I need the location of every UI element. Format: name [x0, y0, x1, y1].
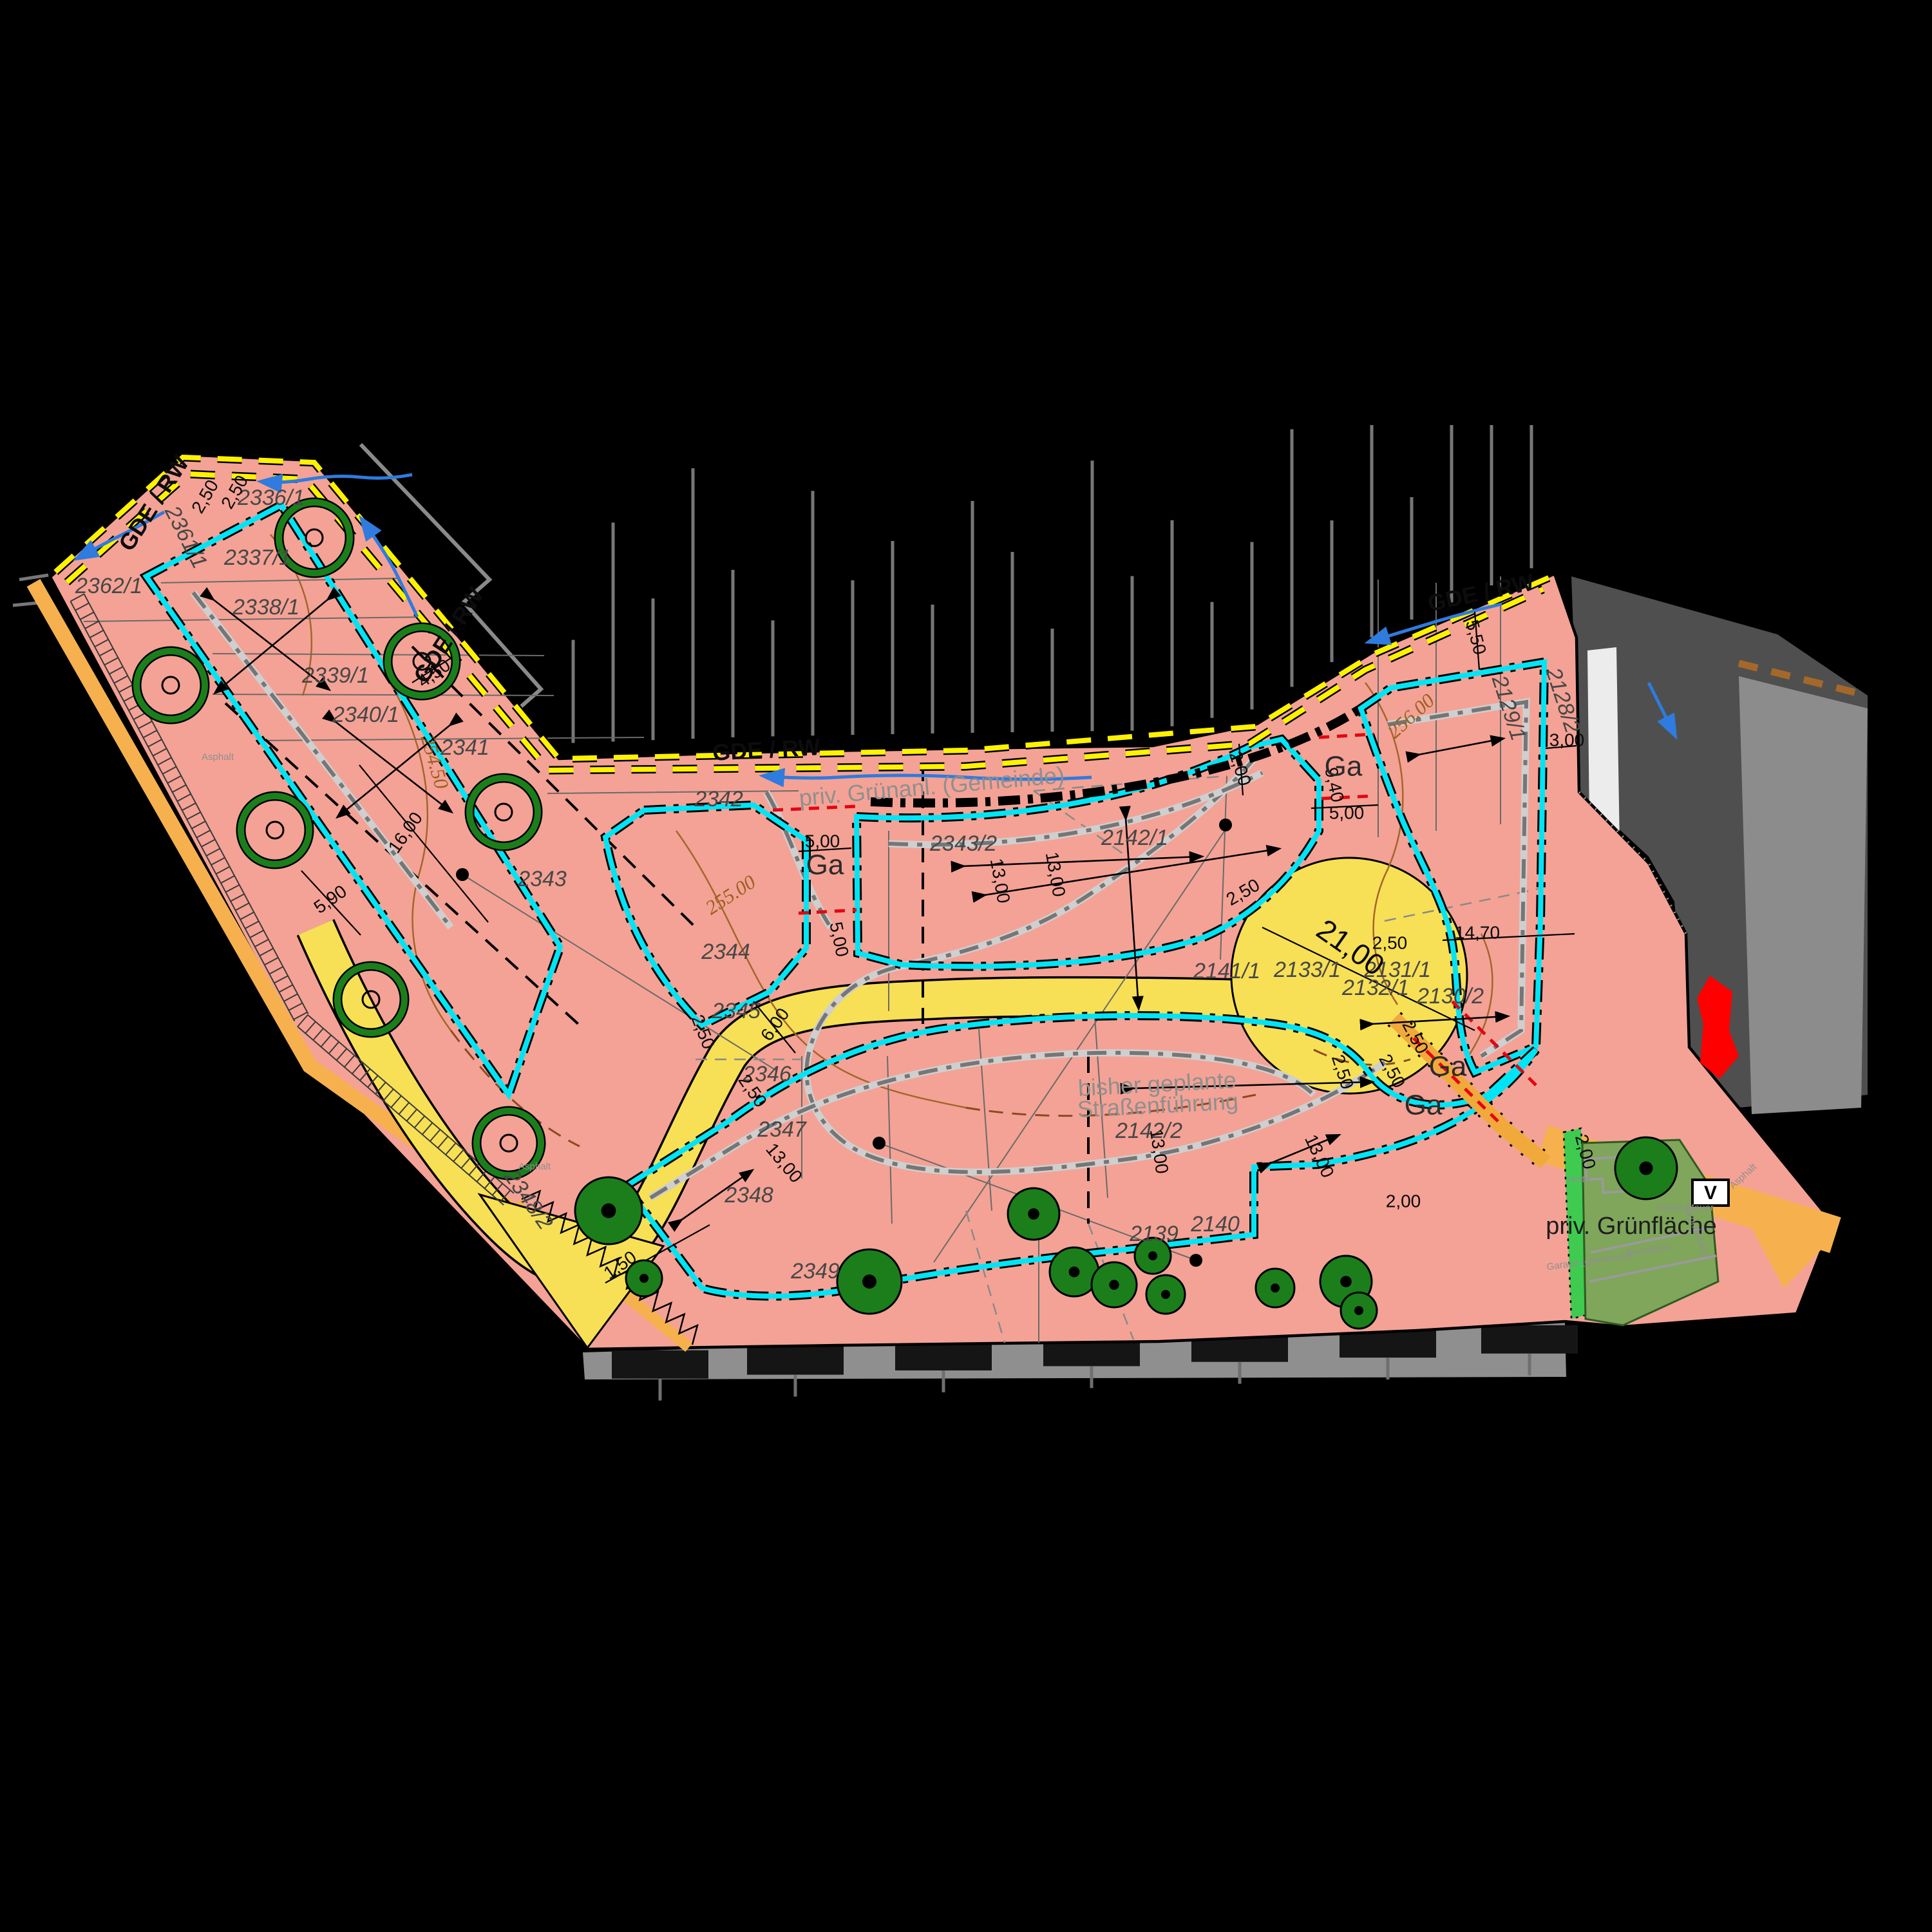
parcel-label-0: 2362/1: [75, 574, 142, 598]
parcel-label-14: 2347: [757, 1117, 807, 1142]
tree-trunk-3: [1028, 1208, 1039, 1220]
garage-label-3: Ga: [1405, 1090, 1443, 1121]
parcel-label-26: 2130/2: [1416, 984, 1484, 1009]
dimension-label-13: 3,00: [1549, 730, 1585, 750]
tree-trunk-1: [639, 1274, 649, 1283]
parcel-label-15: 2348: [724, 1183, 773, 1207]
parcel-label-22: 2141/1: [1193, 959, 1260, 983]
south-building-1: [747, 1347, 844, 1375]
parcel-label-2: 2337/1: [223, 545, 291, 570]
tree-trunk-11: [1639, 1161, 1653, 1175]
parcel-label-5: 2339/1: [301, 663, 369, 688]
tree-trunk-9: [1340, 1276, 1352, 1287]
parcel-label-10: 2343/2: [929, 831, 997, 856]
survey-point-3: [1189, 1254, 1202, 1267]
south-building-6: [1481, 1325, 1578, 1354]
tree-trunk-4: [1069, 1267, 1080, 1278]
dimension-label-15: 14,70: [1455, 922, 1500, 942]
south-building-2: [895, 1342, 992, 1370]
parcel-label-9: 2343: [517, 867, 567, 891]
parcel-label-7: 2341: [440, 735, 489, 760]
annotation-label-0: Asphalt: [202, 752, 234, 762]
parcel-label-12: 2345: [711, 999, 761, 1023]
dimension-label-5: 5,00: [805, 831, 840, 851]
plan-canvas: V GDE / RWGDE / RWGDE / RWGDE / RW2362/1…: [0, 0, 1932, 1932]
utility-corridor-label-2: GDE / RW: [712, 734, 820, 766]
survey-point-0: [456, 868, 469, 881]
garage-label-2: Ga: [1429, 1051, 1467, 1083]
parcel-label-21: 2140: [1190, 1212, 1240, 1236]
site-plan-map: V GDE / RWGDE / RWGDE / RWGDE / RW2362/1…: [0, 0, 1932, 1932]
tree-trunk-6: [1148, 1251, 1157, 1260]
garage-label-1: Ga: [1325, 751, 1363, 782]
tree-trunk-7: [1161, 1290, 1170, 1299]
parcel-label-18: 2142/1: [1101, 826, 1168, 850]
v-marker-label: V: [1704, 1182, 1717, 1204]
tree-trunk-5: [1109, 1280, 1119, 1289]
parcel-label-20: 2139: [1129, 1222, 1179, 1246]
dimension-label-11: 5,00: [1329, 802, 1365, 822]
survey-point-2: [873, 1137, 885, 1150]
parcel-label-11: 2344: [701, 940, 750, 964]
tree-trunk-8: [1271, 1283, 1280, 1293]
survey-point-1: [1219, 819, 1232, 831]
dimension-label-29: 2,00: [1386, 1191, 1421, 1211]
annotation-label-3: Hütte: [1567, 1174, 1590, 1185]
tree-trunk-10: [1354, 1306, 1363, 1315]
tree-trunk-0: [601, 1204, 616, 1218]
south-building-0: [612, 1350, 708, 1379]
parcel-label-23: 2133/1: [1273, 958, 1341, 982]
parcel-label-6: 2340/1: [332, 703, 399, 727]
parcel-label-16: 2349: [790, 1259, 840, 1283]
parcel-label-8: 2342: [694, 787, 743, 811]
annotation-label-1: Asphalt: [518, 1161, 551, 1172]
tree-trunk-2: [862, 1274, 876, 1289]
garage-label-0: Ga: [806, 849, 844, 881]
neighbor-block-east-light: [1739, 676, 1868, 1114]
parcel-label-4: 2338/1: [232, 595, 299, 620]
